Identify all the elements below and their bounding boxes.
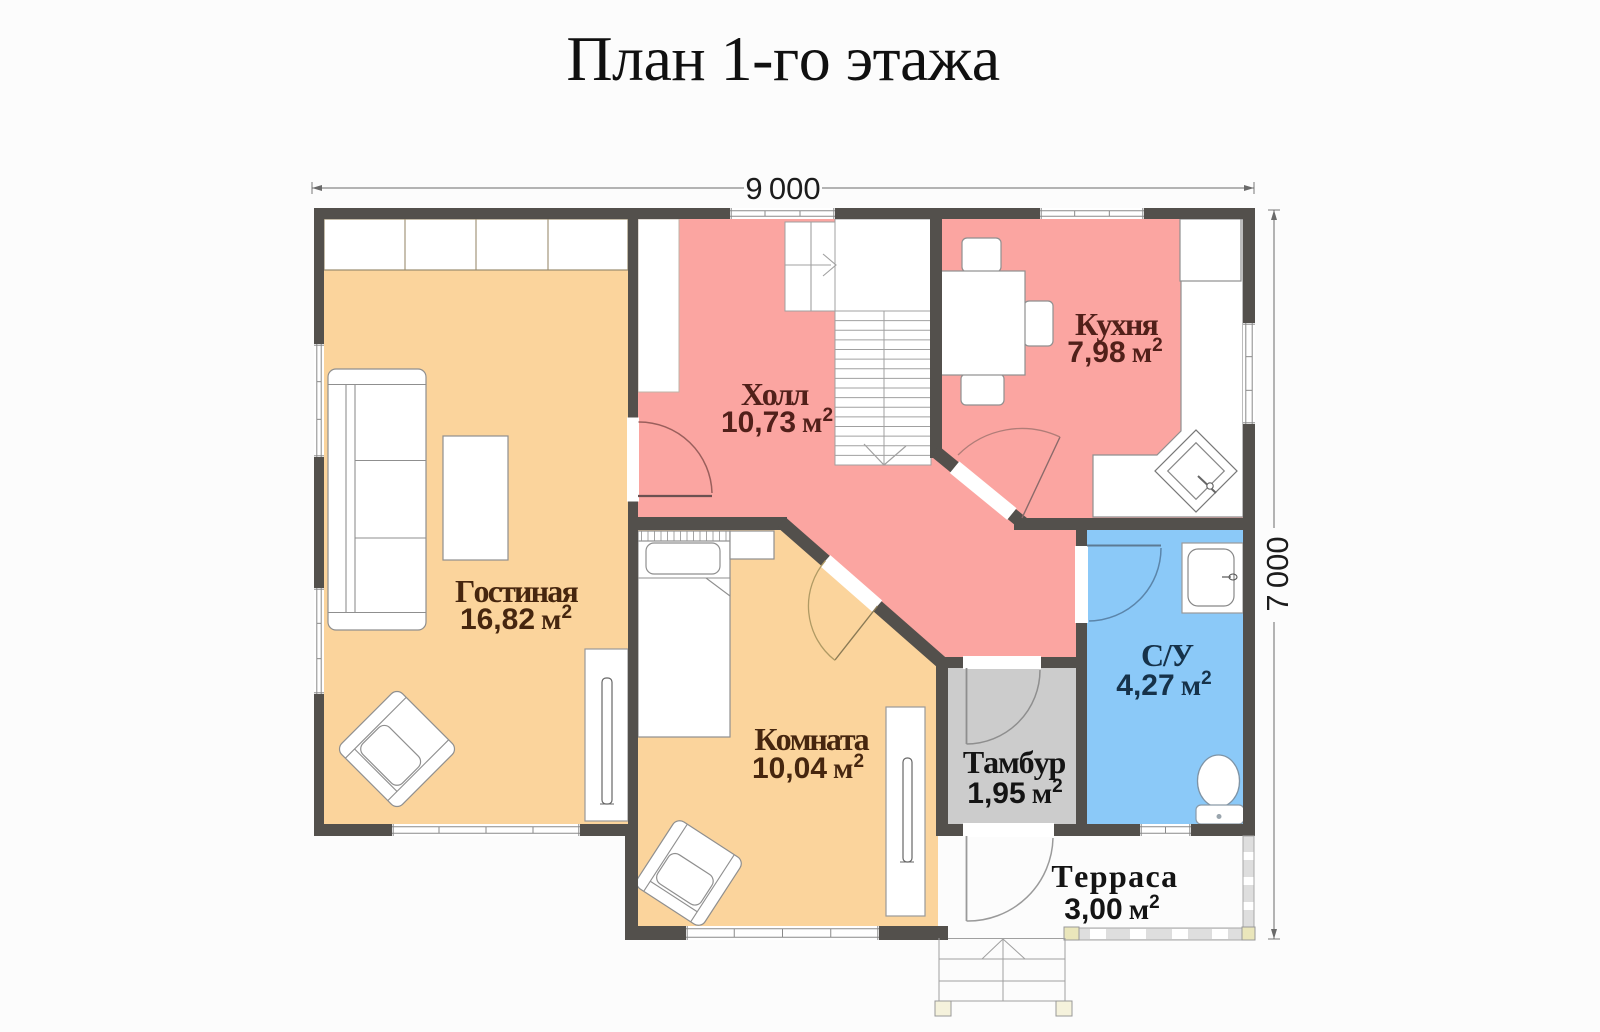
svg-text:7 000: 7 000	[1260, 536, 1295, 611]
svg-text:10,04 м2: 10,04 м2	[752, 751, 864, 785]
svg-text:С/У: С/У	[1141, 637, 1194, 673]
svg-text:7,98 м2: 7,98 м2	[1067, 335, 1162, 369]
svg-text:План 1-го этажа: План 1-го этажа	[566, 23, 999, 94]
svg-text:Тамбур: Тамбур	[963, 744, 1066, 780]
svg-text:3,00 м2: 3,00 м2	[1064, 892, 1159, 926]
svg-text:Терраса: Терраса	[1051, 858, 1178, 894]
svg-text:4,27 м2: 4,27 м2	[1116, 668, 1211, 702]
svg-text:1,95 м2: 1,95 м2	[967, 776, 1062, 810]
svg-text:9 000: 9 000	[745, 171, 820, 206]
svg-text:16,82 м2: 16,82 м2	[460, 602, 572, 636]
svg-text:10,73 м2: 10,73 м2	[721, 405, 833, 439]
